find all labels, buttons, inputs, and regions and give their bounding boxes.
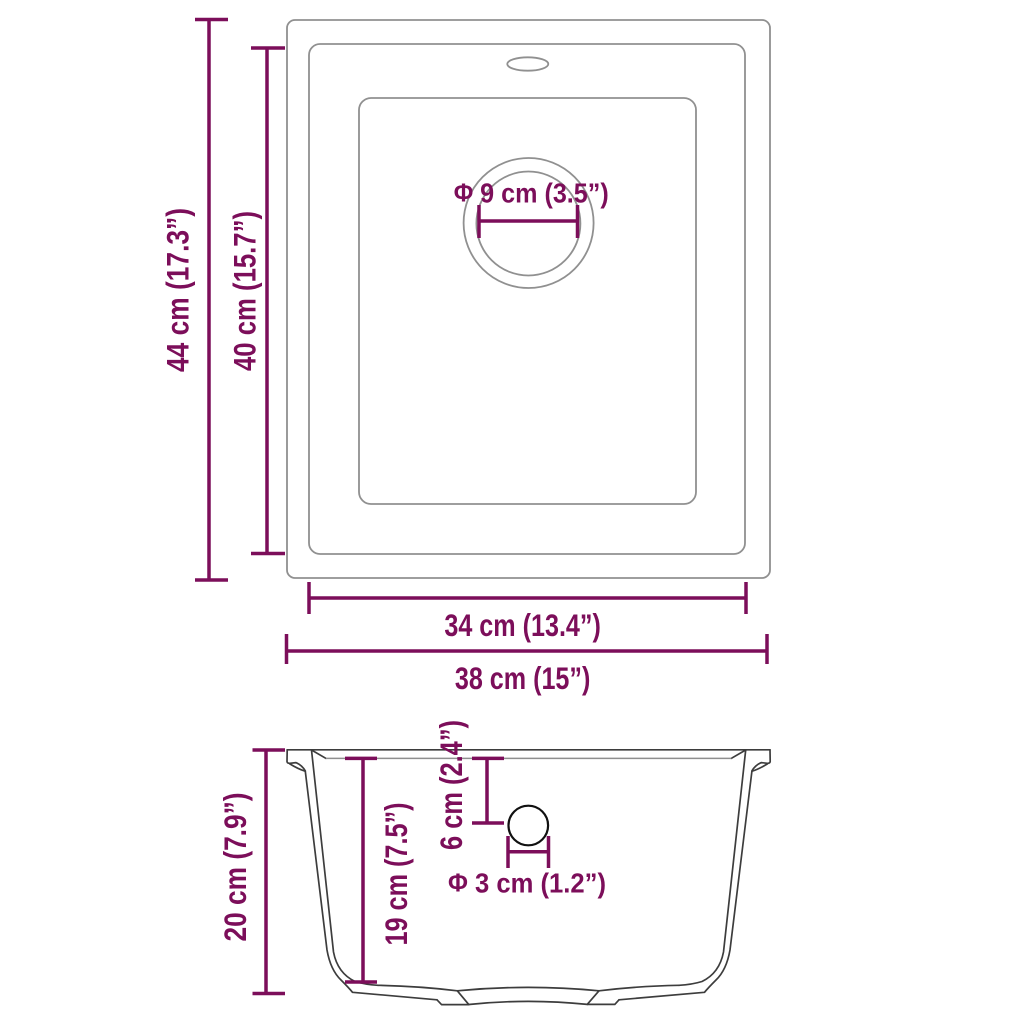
svg-text:Φ 9 cm (3.5”): Φ 9 cm (3.5”): [454, 178, 609, 209]
svg-text:Φ 3 cm (1.2”): Φ 3 cm (1.2”): [448, 868, 606, 899]
svg-text:34 cm (13.4”): 34 cm (13.4”): [444, 607, 601, 643]
svg-text:20 cm (7.9”): 20 cm (7.9”): [217, 793, 253, 942]
svg-text:44 cm (17.3”): 44 cm (17.3”): [160, 208, 196, 372]
svg-text:6 cm (2.4”): 6 cm (2.4”): [433, 720, 469, 850]
svg-text:38 cm (15”): 38 cm (15”): [455, 660, 591, 696]
svg-text:40 cm (15.7”): 40 cm (15.7”): [227, 211, 263, 371]
svg-text:19 cm (7.5”): 19 cm (7.5”): [378, 803, 414, 946]
